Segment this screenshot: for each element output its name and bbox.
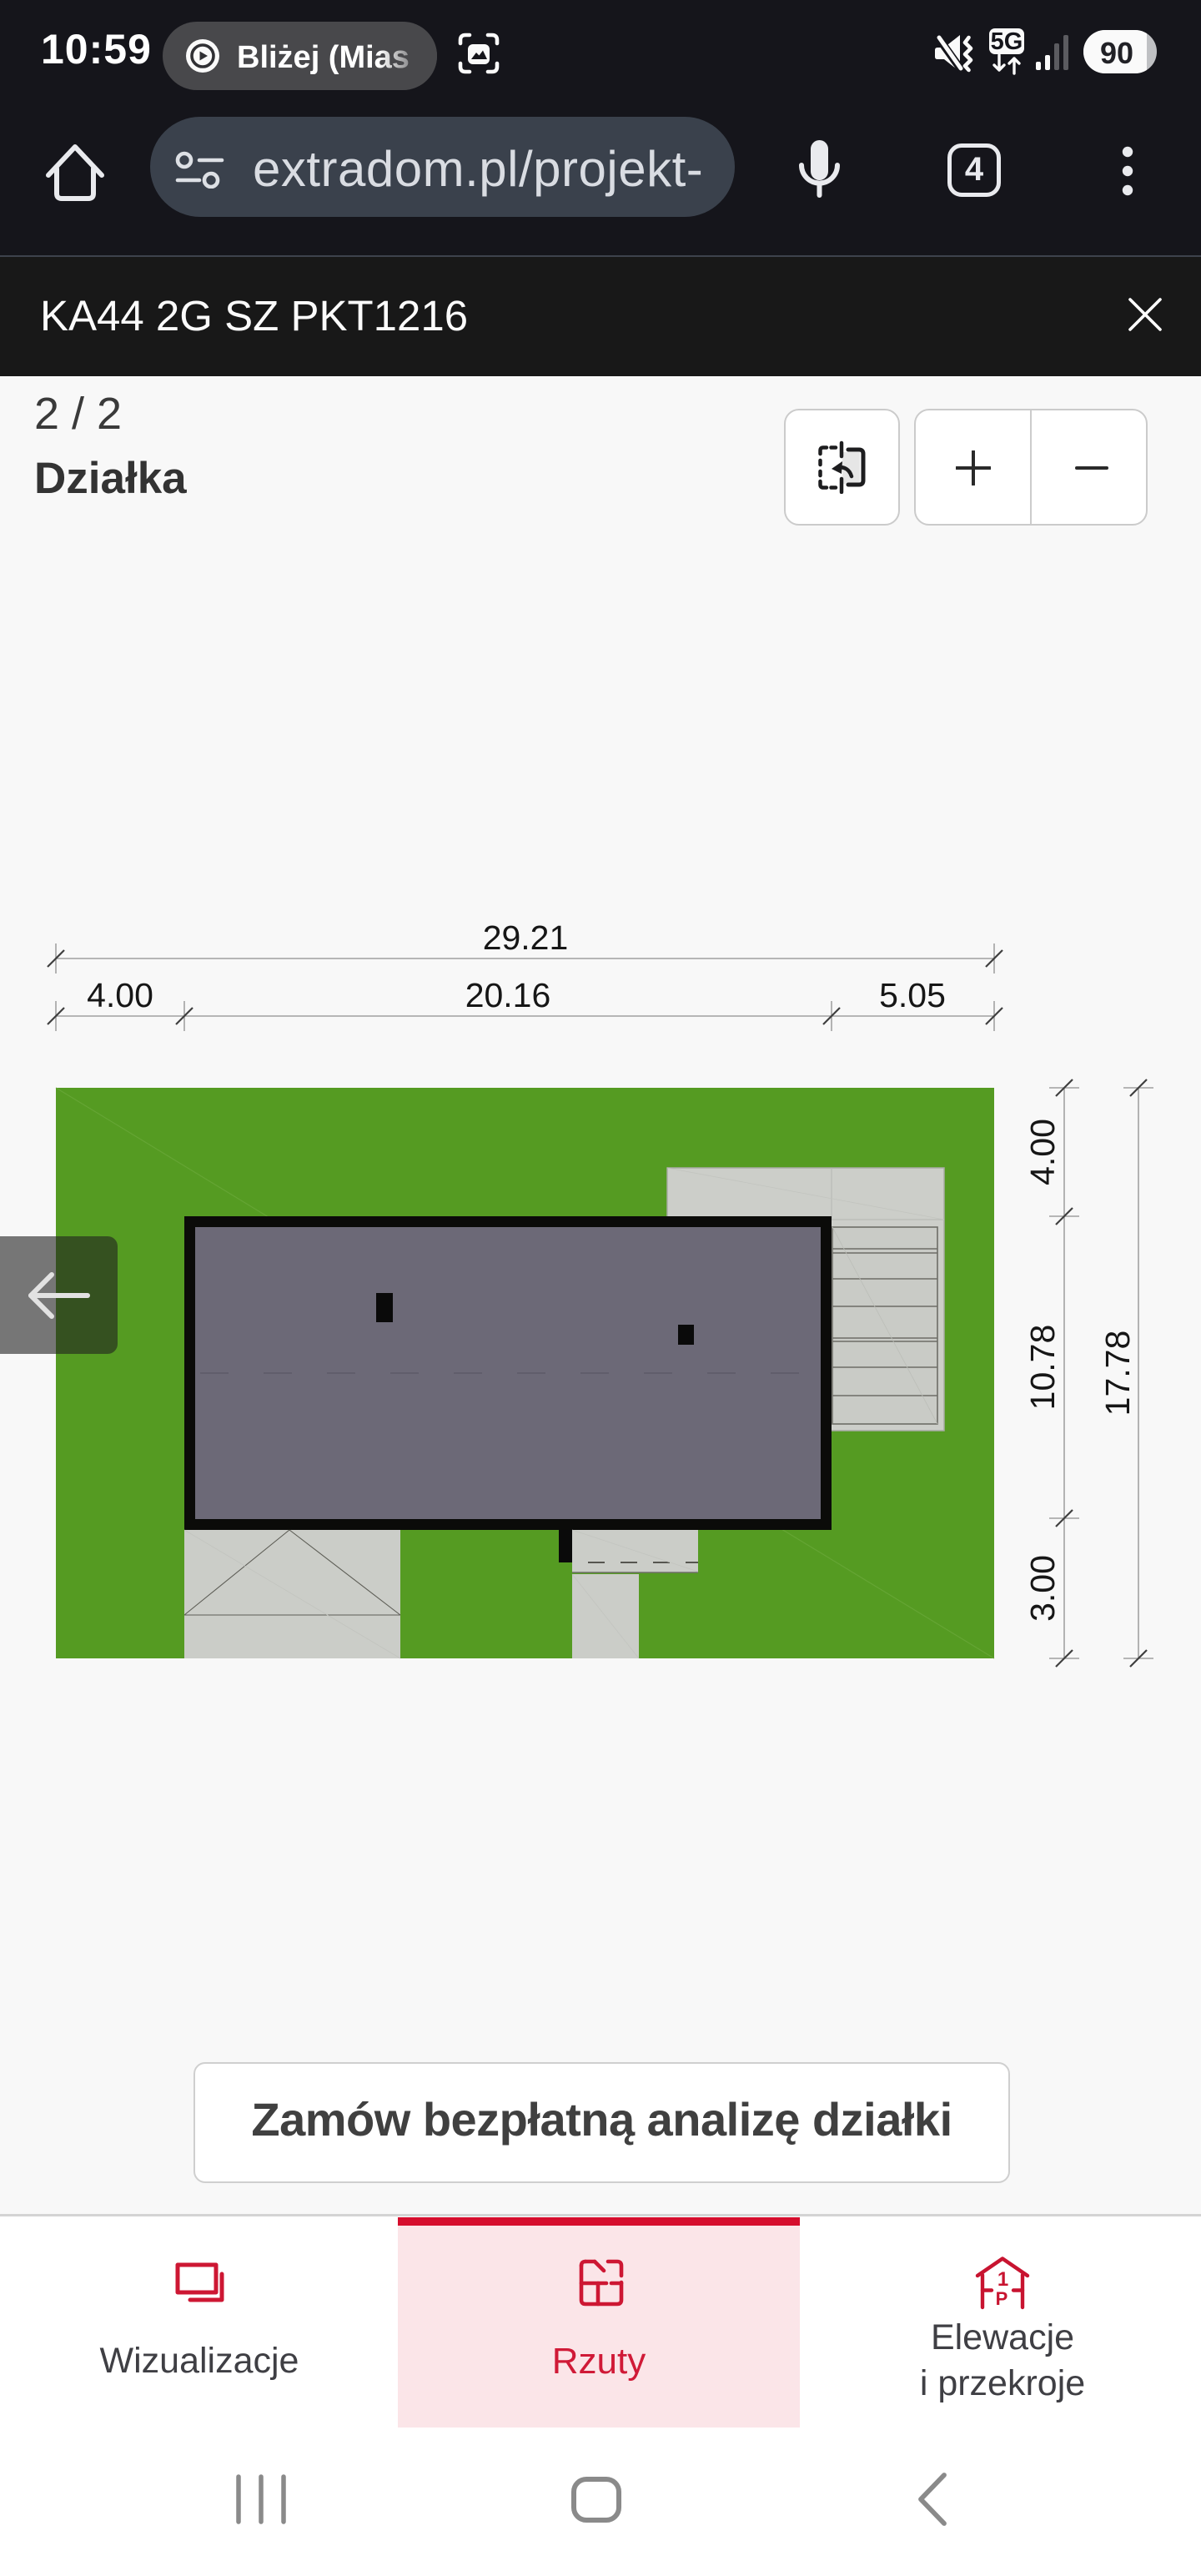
svg-text:29.21: 29.21: [483, 918, 569, 957]
svg-text:3.00: 3.00: [1023, 1555, 1062, 1622]
svg-text:5.05: 5.05: [879, 976, 946, 1014]
svg-text:10.78: 10.78: [1023, 1325, 1062, 1411]
svg-text:1: 1: [997, 2268, 1008, 2291]
svg-text:4.00: 4.00: [87, 976, 153, 1014]
svg-text:17.78: 17.78: [1098, 1331, 1137, 1416]
svg-text:4.00: 4.00: [1023, 1119, 1062, 1185]
svg-text:20.16: 20.16: [465, 976, 551, 1014]
svg-text:P: P: [996, 2288, 1008, 2309]
